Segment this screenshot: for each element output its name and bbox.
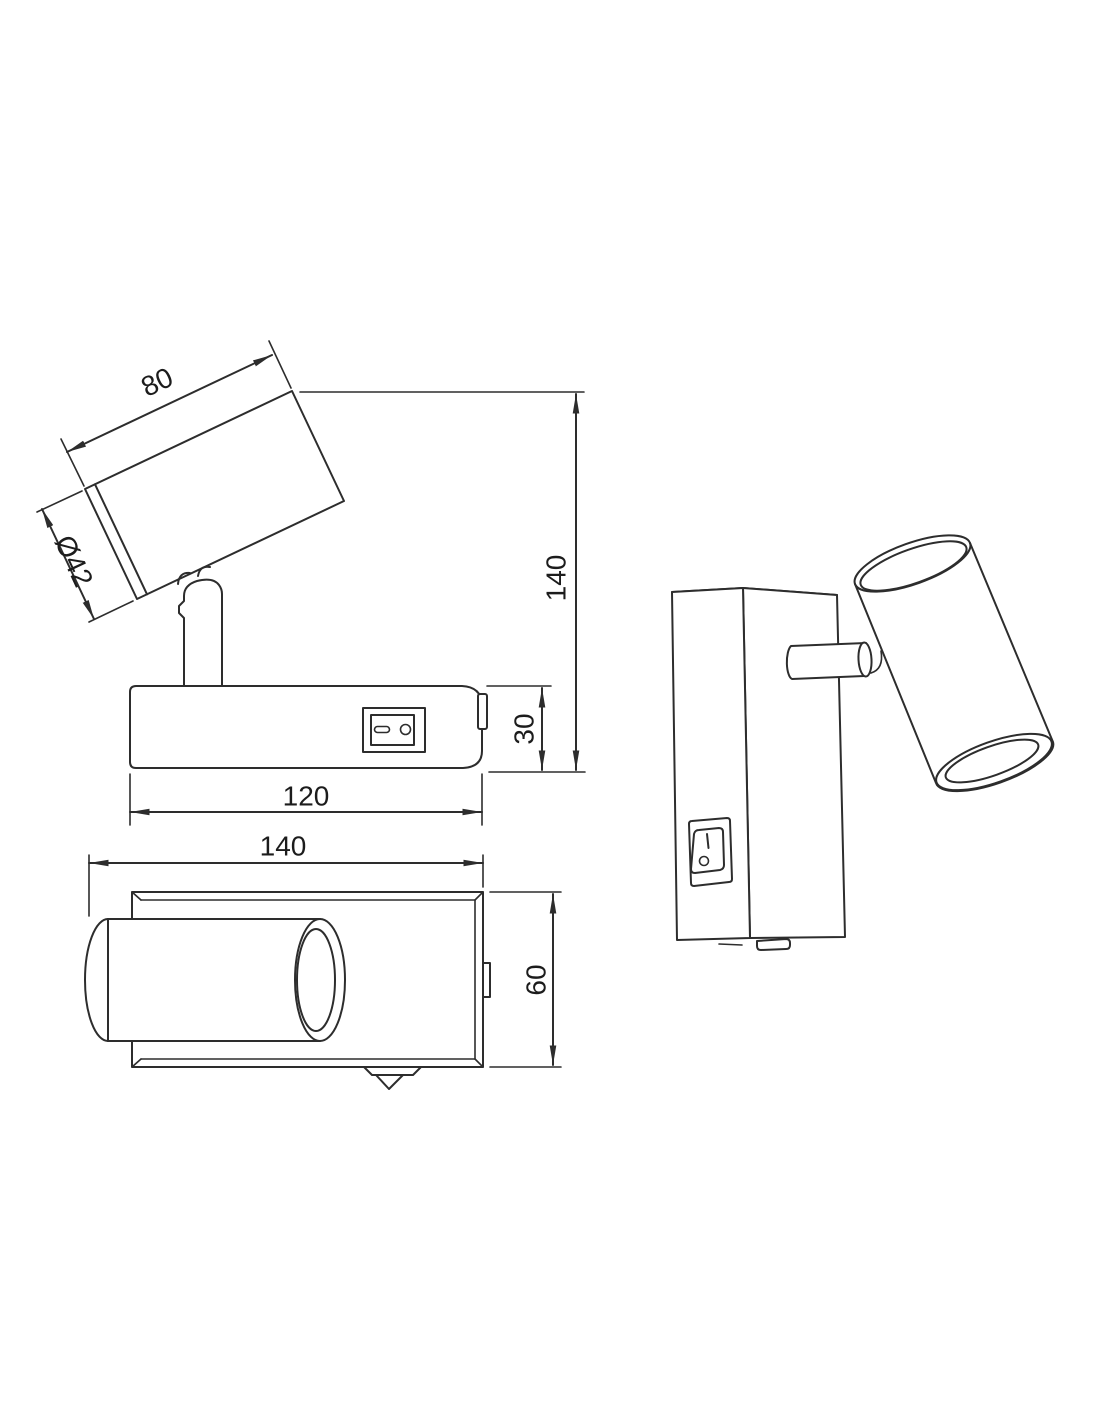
persp-bottom-edge-line xyxy=(719,944,742,945)
dim-base-length: 120 xyxy=(130,774,482,825)
side-pivot-arm xyxy=(179,580,222,686)
side-spot-head xyxy=(85,391,344,599)
side-cable-tab xyxy=(478,694,487,729)
persp-pivot-arm xyxy=(787,643,866,679)
side-base-plate xyxy=(130,686,482,768)
side-view: 80 Ø42 140 30 120 xyxy=(37,341,585,825)
extension-line xyxy=(269,341,291,388)
top-cable-tab xyxy=(483,963,490,997)
lamp-dimension-drawing: 80 Ø42 140 30 120 xyxy=(0,0,1100,1422)
dim-label-spot-diameter: Ø42 xyxy=(49,530,99,591)
dim-label-base-depth: 60 xyxy=(521,964,552,995)
dim-label-spot-length: 80 xyxy=(136,361,177,402)
top-switch-body xyxy=(364,1067,421,1075)
top-view: 140 60 xyxy=(85,831,561,1090)
extension-line xyxy=(37,491,82,512)
extension-line xyxy=(89,601,133,622)
persp-cable-tab xyxy=(757,939,790,950)
dim-label-base-length: 120 xyxy=(283,781,330,812)
dim-base-height: 30 xyxy=(487,686,551,770)
persp-pivot-knuckle xyxy=(871,651,882,673)
perspective-view xyxy=(672,531,1058,950)
dim-label-base-height: 30 xyxy=(509,713,540,744)
persp-spot-silhouette xyxy=(855,535,1054,791)
persp-box-right-face xyxy=(743,588,845,938)
dim-label-overall-width: 140 xyxy=(260,831,307,862)
persp-box-front-face xyxy=(672,588,750,940)
dim-base-depth: 60 xyxy=(490,892,561,1067)
technical-drawing-page: 80 Ø42 140 30 120 xyxy=(0,0,1100,1422)
dim-label-total-height: 140 xyxy=(541,555,572,602)
top-switch-rocker xyxy=(376,1075,403,1089)
